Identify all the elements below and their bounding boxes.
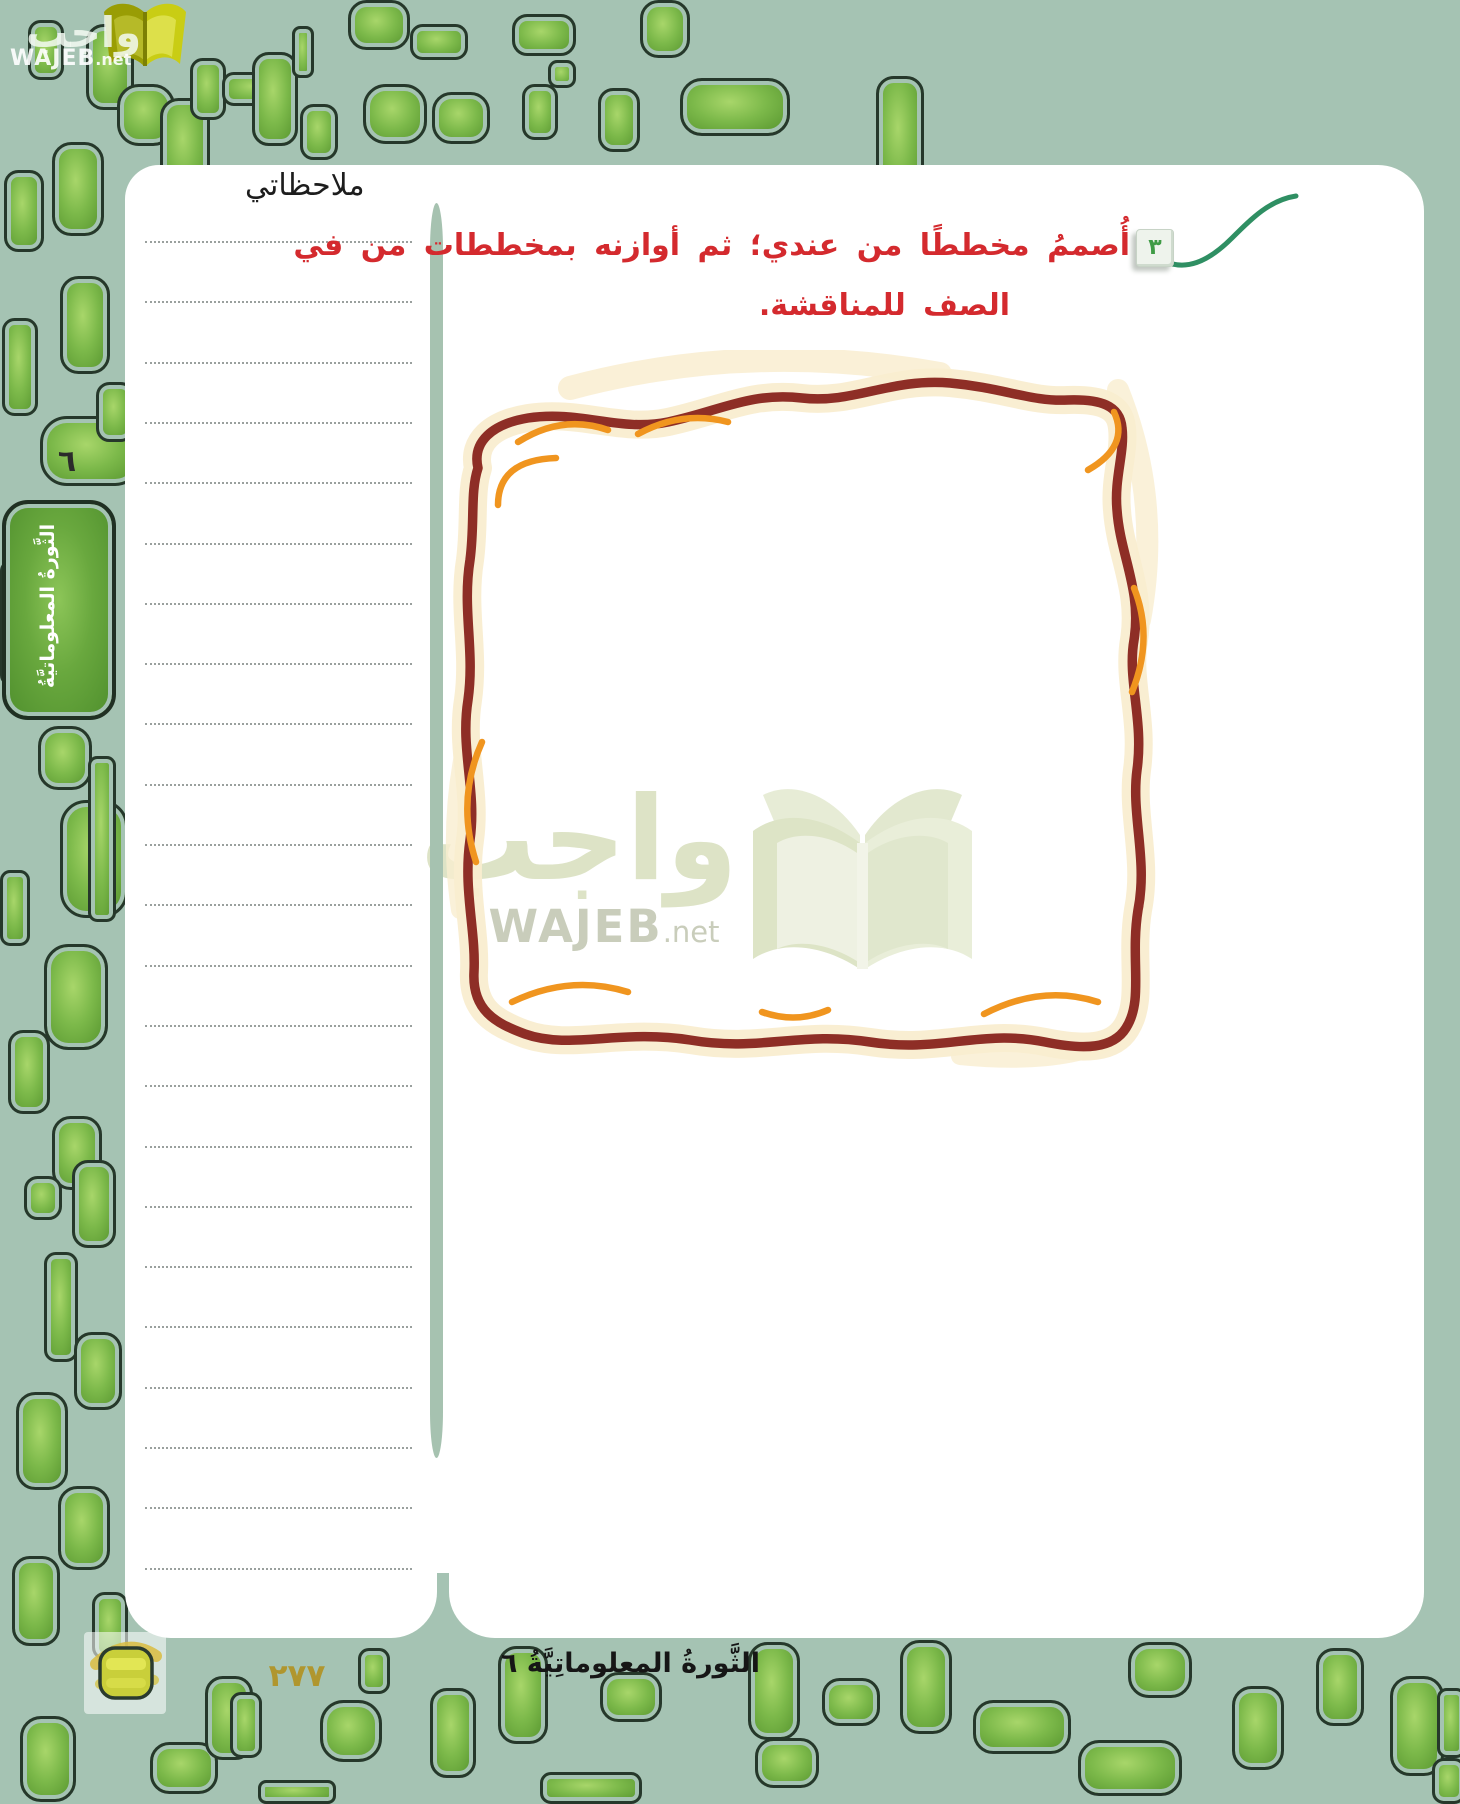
notes-ruled-line: [145, 965, 412, 967]
sidebar-tab-label: الثَّورةُ المعلوماتيَّةُ: [37, 506, 73, 706]
pill-decoration: [44, 944, 108, 1050]
notes-panel: [125, 165, 437, 1638]
pill-decoration: [1232, 1686, 1284, 1770]
footer-book-title: الثَّورةُ المعلوماتِيَّةُ ٦: [535, 1648, 760, 1679]
pill-decoration: [16, 1392, 68, 1490]
pill-decoration: [20, 1716, 76, 1802]
pill-decoration: [44, 1252, 78, 1362]
instruction-text-line2: الصف للمناقشة.: [759, 288, 1010, 323]
pill-decoration: [8, 1030, 50, 1114]
notes-ruled-line: [145, 1568, 412, 1570]
pill-decoration: [38, 726, 92, 790]
pill-decoration: [512, 14, 576, 56]
notes-ruled-line: [145, 301, 412, 303]
pill-decoration: [432, 92, 490, 144]
pill-decoration: [973, 1700, 1071, 1754]
sidebar-unit-tab: الثَّورةُ المعلوماتيَّةُ: [2, 500, 116, 720]
pill-decoration: [522, 84, 558, 140]
logo-latin-text: WAJEB.net: [10, 46, 131, 71]
pill-decoration: [60, 276, 110, 374]
pill-decoration: [88, 756, 116, 922]
notes-ruled-line: [145, 904, 412, 906]
notes-ruled-line: [145, 1146, 412, 1148]
page-number: ٢٧٧: [252, 1658, 342, 1694]
notes-ruled-line: [145, 482, 412, 484]
pill-decoration: [540, 1772, 642, 1804]
pill-decoration: [348, 0, 410, 50]
pill-decoration: [1078, 1740, 1182, 1796]
pill-decoration: [72, 1160, 116, 1248]
pill-decoration: [1128, 1642, 1192, 1698]
notes-ruled-line: [145, 422, 412, 424]
wajeb-logo-bottom-left: [84, 1632, 166, 1714]
notes-ruled-line: [145, 1447, 412, 1449]
pill-decoration: [358, 1648, 390, 1694]
pill-decoration: [600, 1672, 662, 1722]
notes-ruled-line: [145, 723, 412, 725]
pill-decoration: [0, 870, 30, 946]
pill-decoration: [24, 1176, 62, 1220]
pill-decoration: [74, 1332, 122, 1410]
notes-ruled-line: [145, 1085, 412, 1087]
notes-ruled-line: [145, 543, 412, 545]
pill-decoration: [1437, 1688, 1460, 1758]
pill-decoration: [430, 1688, 476, 1778]
pill-decoration: [58, 1486, 110, 1570]
notes-ruled-line: [145, 1266, 412, 1268]
notes-ruled-line: [145, 1507, 412, 1509]
wajeb-logo-top-left: واجب WAJEB.net: [0, 0, 210, 90]
instruction-text-line1: أُصممُ مخططًا من عندي؛ ثم أوازنه بمخططات…: [293, 228, 1130, 263]
pill-decoration: [230, 1692, 262, 1758]
pill-decoration: [1316, 1648, 1364, 1726]
sidebar-unit-number: ٦: [46, 444, 88, 479]
pill-decoration: [548, 60, 576, 88]
drawing-frame: [420, 350, 1180, 1070]
pill-decoration: [755, 1738, 819, 1788]
pill-decoration: [258, 1780, 336, 1804]
pill-decoration: [598, 88, 640, 152]
pill-decoration: [410, 24, 468, 60]
notes-ruled-line: [145, 362, 412, 364]
notes-ruled-line: [145, 663, 412, 665]
notes-ruled-line: [145, 1025, 412, 1027]
notes-ruled-line: [145, 844, 412, 846]
pill-decoration: [12, 1556, 60, 1646]
exercise-number-badge: ٣: [1136, 229, 1174, 267]
pill-decoration: [640, 0, 690, 58]
notes-ruled-line: [145, 1387, 412, 1389]
pill-decoration: [320, 1700, 382, 1762]
pill-decoration: [292, 26, 314, 78]
pill-decoration: [363, 84, 427, 144]
pill-decoration: [4, 170, 44, 252]
notes-ruled-line: [145, 603, 412, 605]
gold-book-icon: [84, 1632, 166, 1714]
pill-decoration: [52, 142, 104, 236]
pill-decoration: [900, 1640, 952, 1734]
notes-ruled-line: [145, 1206, 412, 1208]
pill-decoration: [300, 104, 338, 160]
notes-header: ملاحظاتي: [245, 168, 393, 203]
pill-decoration: [822, 1678, 880, 1726]
pill-decoration: [680, 78, 790, 136]
notes-ruled-line: [145, 784, 412, 786]
notes-ruled-line: [145, 1326, 412, 1328]
pill-decoration: [1432, 1758, 1460, 1804]
pill-decoration: [2, 318, 38, 416]
